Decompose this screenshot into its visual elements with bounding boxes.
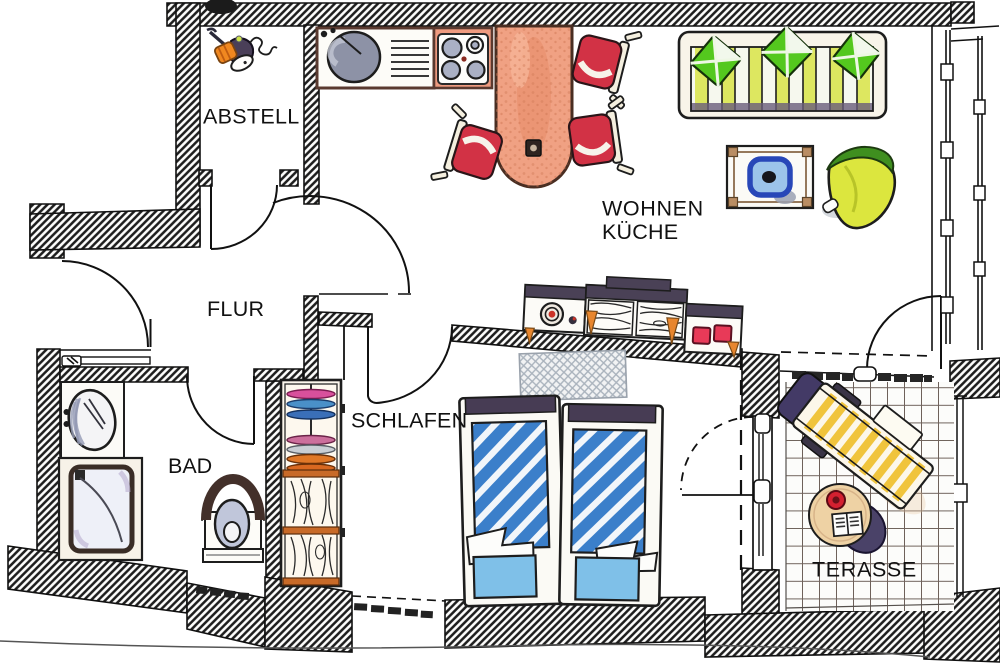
svg-text:TERASSE: TERASSE (812, 558, 917, 582)
svg-text:WOHNEN: WOHNEN (602, 197, 704, 221)
svg-text:ABSTELL: ABSTELL (203, 105, 300, 129)
svg-text:KÜCHE: KÜCHE (602, 220, 678, 244)
svg-text:FLUR: FLUR (207, 297, 264, 321)
svg-text:SCHLAFEN: SCHLAFEN (351, 409, 467, 433)
svg-text:BAD: BAD (168, 454, 212, 478)
